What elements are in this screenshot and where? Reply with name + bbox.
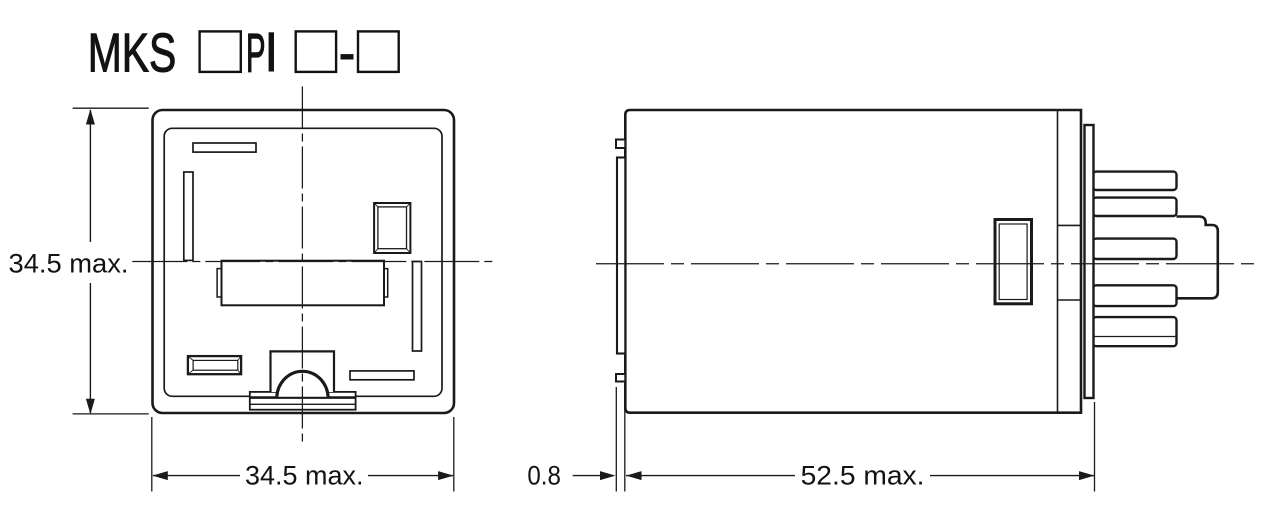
svg-text:34.5 max.: 34.5 max. xyxy=(9,249,129,279)
svg-text:34.5 max.: 34.5 max. xyxy=(245,460,364,490)
svg-text:P: P xyxy=(246,23,266,84)
svg-text:0.8: 0.8 xyxy=(527,460,561,490)
svg-text:52.5 max.: 52.5 max. xyxy=(801,460,925,490)
svg-text:MKS: MKS xyxy=(88,23,177,84)
